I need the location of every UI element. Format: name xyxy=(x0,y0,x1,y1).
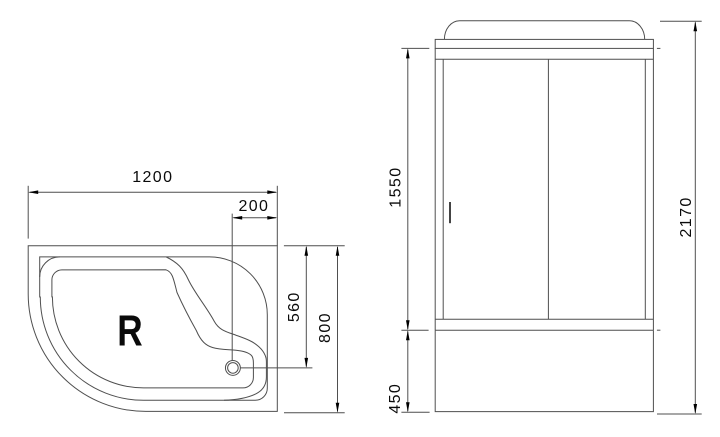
svg-text:560: 560 xyxy=(286,291,303,322)
svg-text:1550: 1550 xyxy=(387,166,404,207)
svg-text:1200: 1200 xyxy=(132,169,173,186)
svg-text:200: 200 xyxy=(238,198,269,215)
svg-text:2170: 2170 xyxy=(678,196,695,237)
svg-text:450: 450 xyxy=(387,383,404,414)
svg-text:R: R xyxy=(117,307,142,356)
svg-text:800: 800 xyxy=(317,312,334,343)
